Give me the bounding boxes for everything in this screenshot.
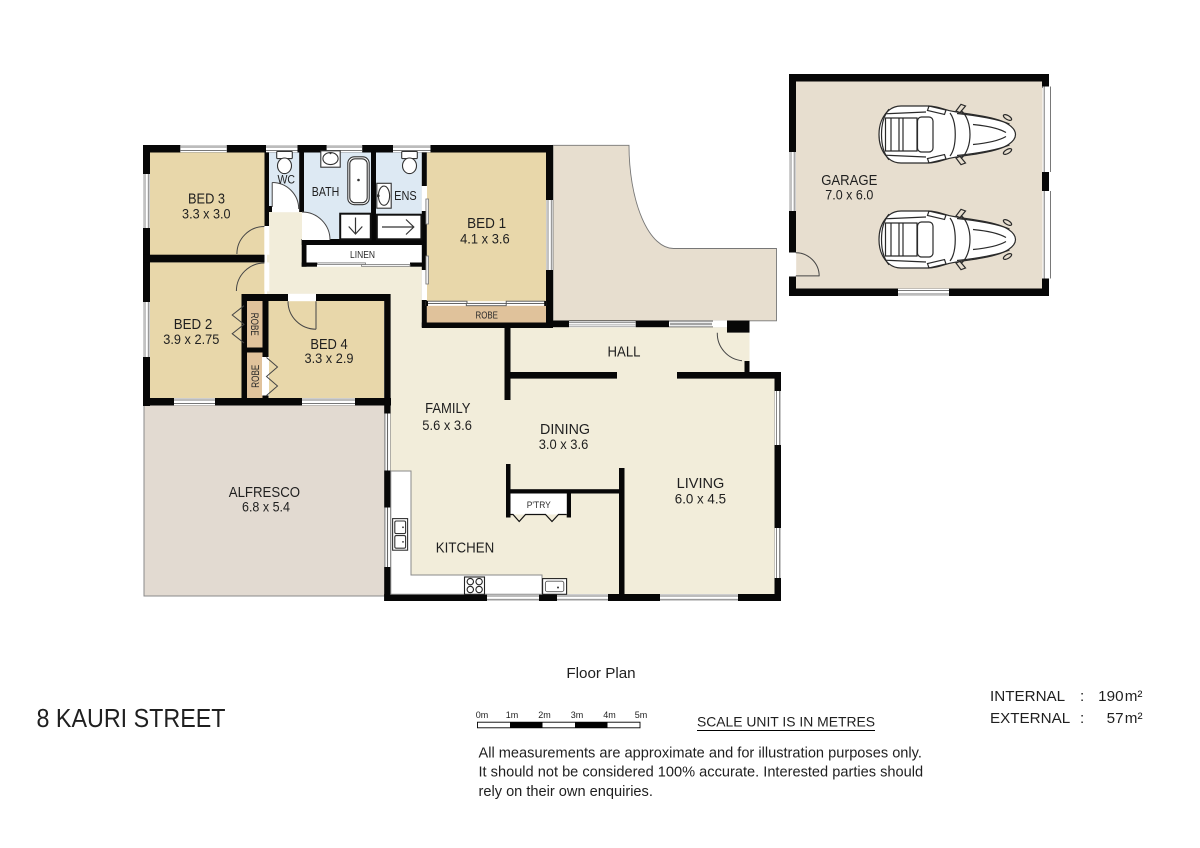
svg-text:DINING: DINING — [540, 422, 590, 438]
svg-text:3.0 x 3.6: 3.0 x 3.6 — [539, 437, 589, 452]
svg-text:ENS: ENS — [394, 189, 417, 203]
svg-text:6.8 x 5.4: 6.8 x 5.4 — [242, 500, 290, 515]
svg-text:4.1 x 3.6: 4.1 x 3.6 — [460, 232, 510, 247]
svg-text:2m: 2m — [538, 710, 551, 720]
svg-text::: : — [1080, 688, 1084, 705]
svg-text:ALFRESCO: ALFRESCO — [229, 485, 300, 501]
svg-text:8 KAURI STREET: 8 KAURI STREET — [37, 703, 226, 733]
svg-text:7.0 x 6.0: 7.0 x 6.0 — [825, 187, 873, 202]
svg-text:5.6 x 3.6: 5.6 x 3.6 — [422, 418, 472, 433]
svg-text:INTERNAL: INTERNAL — [990, 688, 1065, 705]
svg-text:3m: 3m — [571, 710, 584, 720]
svg-text:5m: 5m — [635, 710, 648, 720]
svg-text:BED 2: BED 2 — [174, 317, 213, 333]
svg-text:57 m²: 57 m² — [1107, 710, 1143, 727]
svg-text:It should not be considered 10: It should not be considered 100% accurat… — [479, 765, 924, 781]
svg-text:0m: 0m — [476, 710, 489, 720]
svg-text:P'TRY: P'TRY — [527, 500, 551, 510]
svg-text:3.3 x 3.0: 3.3 x 3.0 — [182, 207, 231, 222]
svg-text:ROBE: ROBE — [476, 311, 499, 322]
svg-text:3.3 x 2.9: 3.3 x 2.9 — [305, 351, 354, 366]
svg-text:HALL: HALL — [608, 345, 641, 361]
svg-text:FAMILY: FAMILY — [425, 401, 471, 417]
svg-text:SCALE UNIT IS IN METRES: SCALE UNIT IS IN METRES — [697, 714, 875, 730]
svg-text:6.0 x 4.5: 6.0 x 4.5 — [675, 492, 726, 507]
svg-text:EXTERNAL: EXTERNAL — [990, 710, 1070, 727]
svg-text:Floor Plan: Floor Plan — [566, 665, 635, 682]
svg-text:ROBE: ROBE — [248, 313, 260, 336]
svg-text:LIVING: LIVING — [677, 476, 725, 492]
svg-text:BATH: BATH — [312, 185, 340, 199]
svg-text:ROBE: ROBE — [250, 365, 262, 388]
svg-text:LINEN: LINEN — [350, 249, 375, 261]
svg-text:BED 1: BED 1 — [467, 216, 506, 232]
svg-text:190 m²: 190 m² — [1098, 688, 1142, 705]
svg-text:1m: 1m — [506, 710, 519, 720]
svg-text:4m: 4m — [603, 710, 616, 720]
svg-text::: : — [1080, 710, 1084, 727]
svg-text:BED 3: BED 3 — [188, 191, 225, 207]
svg-text:KITCHEN: KITCHEN — [436, 541, 494, 557]
svg-text:All measurements are approxima: All measurements are approximate and for… — [479, 746, 922, 762]
svg-text:rely on their own enquiries.: rely on their own enquiries. — [479, 784, 653, 800]
svg-text:WC: WC — [277, 174, 295, 186]
svg-text:3.9 x 2.75: 3.9 x 2.75 — [163, 332, 219, 347]
